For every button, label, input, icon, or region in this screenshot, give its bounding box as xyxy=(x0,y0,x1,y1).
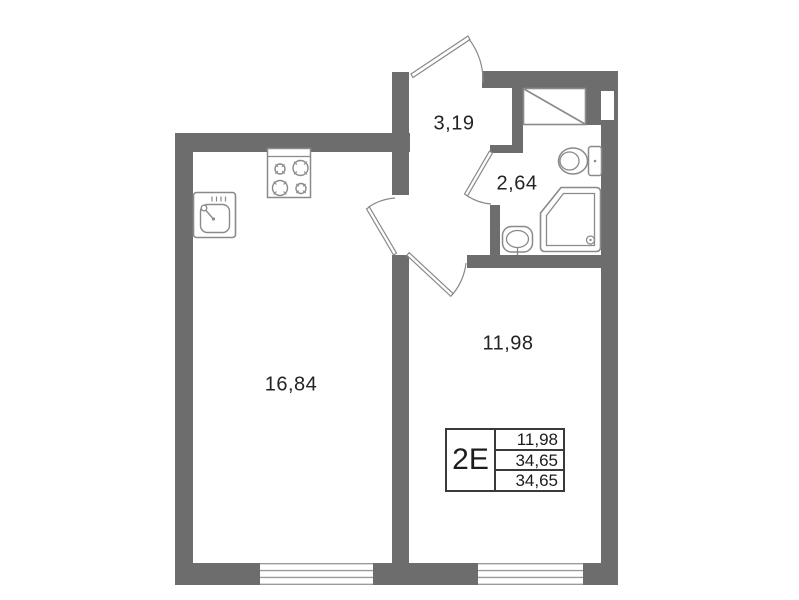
window-bedroom xyxy=(478,563,583,585)
vent-shaft-icon xyxy=(524,89,586,125)
bathroom-door xyxy=(465,151,493,204)
area-row-overall: 34,65 xyxy=(496,471,563,490)
toilet-icon xyxy=(559,147,602,176)
room-area-label-living: 16,84 xyxy=(265,374,318,397)
living-room-door xyxy=(367,198,397,255)
floor-plan: 3,19 2,64 16,84 11,98 2Е 11,98 34,65 34,… xyxy=(0,0,799,600)
room-area-label-bedroom: 11,98 xyxy=(482,333,533,356)
wall-segment xyxy=(373,563,478,585)
area-row-total: 34,65 xyxy=(496,451,563,472)
shower-tray-icon xyxy=(541,188,601,252)
duct-opening xyxy=(601,91,614,120)
wall-segment xyxy=(490,205,500,263)
washbasin-icon xyxy=(503,227,533,256)
wall-segment xyxy=(467,255,618,268)
walls xyxy=(175,71,618,585)
room-area-label-hall: 3,19 xyxy=(434,113,475,136)
wall-segment xyxy=(175,563,260,585)
kitchen-sink-icon xyxy=(194,193,236,238)
wall-segment xyxy=(586,88,601,125)
wall-segment xyxy=(601,88,618,585)
wall-segment xyxy=(392,72,409,195)
floor-plan-drawing xyxy=(0,0,799,600)
apartment-type-label: 2Е xyxy=(447,430,496,490)
apartment-areas: 11,98 34,65 34,65 xyxy=(496,430,563,490)
wall-segment xyxy=(175,133,193,585)
wall-segment xyxy=(392,255,409,563)
wall-segment xyxy=(512,88,523,145)
apartment-info-table: 2Е 11,98 34,65 34,65 xyxy=(445,428,565,492)
area-row-living: 11,98 xyxy=(496,430,563,451)
stove-icon xyxy=(268,149,311,198)
window-living xyxy=(260,563,373,585)
wall-segment xyxy=(490,145,523,153)
wall-segment xyxy=(482,71,618,88)
bedroom-door xyxy=(407,253,466,297)
room-area-label-bathroom: 2,64 xyxy=(497,173,538,196)
entrance-door xyxy=(411,36,483,83)
